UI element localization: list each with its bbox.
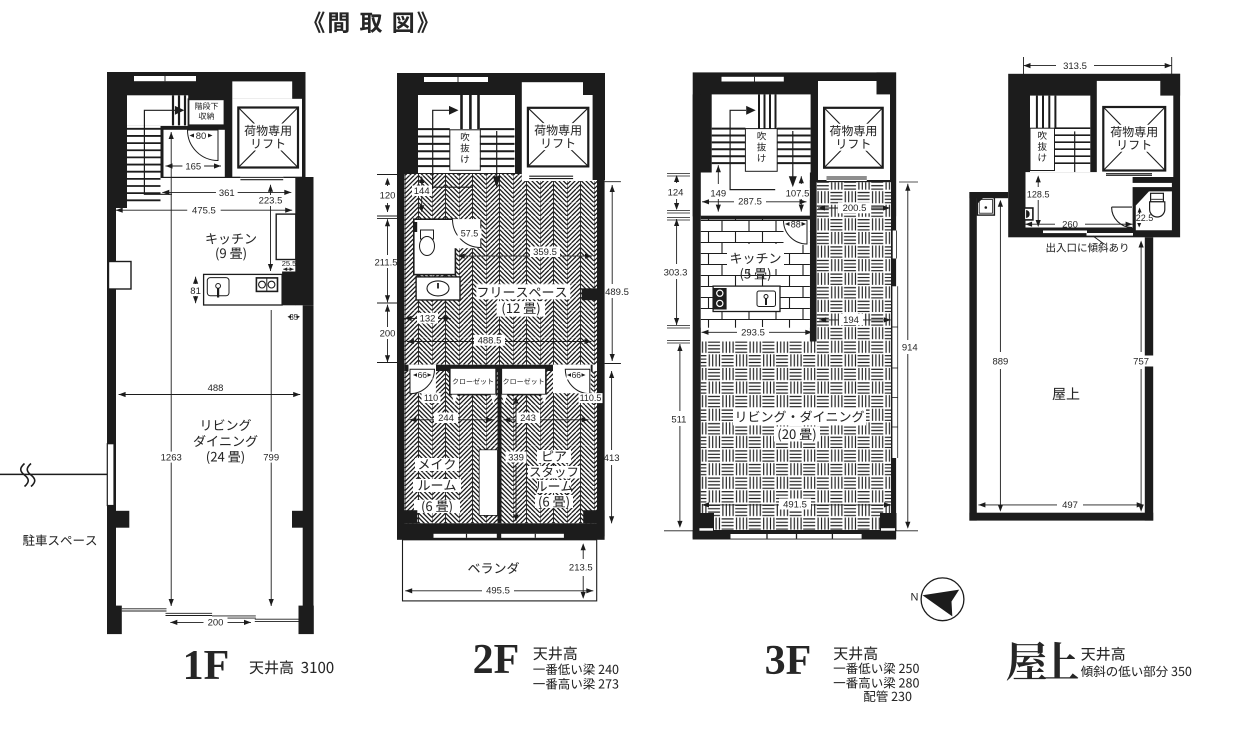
svg-text:799: 799 xyxy=(263,453,279,464)
svg-text:110.5: 110.5 xyxy=(580,393,602,403)
svg-text:213.5: 213.5 xyxy=(569,562,593,573)
svg-text:243: 243 xyxy=(520,413,536,424)
svg-text:149: 149 xyxy=(710,189,726,200)
svg-text:287.5: 287.5 xyxy=(738,197,762,208)
svg-text:120: 120 xyxy=(380,190,396,201)
svg-text:22.5: 22.5 xyxy=(1136,213,1154,223)
svg-text:66: 66 xyxy=(572,370,582,380)
svg-text:293.5: 293.5 xyxy=(741,328,765,339)
svg-text:66: 66 xyxy=(418,370,428,380)
svg-text:491.5: 491.5 xyxy=(783,500,807,511)
svg-text:511: 511 xyxy=(671,415,686,426)
svg-text:488.5: 488.5 xyxy=(478,336,502,347)
svg-text:165: 165 xyxy=(185,161,201,172)
svg-text:35: 35 xyxy=(289,313,298,322)
svg-text:495.5: 495.5 xyxy=(486,586,510,597)
svg-text:914: 914 xyxy=(902,343,918,354)
svg-text:488: 488 xyxy=(208,383,224,394)
svg-text:303.3: 303.3 xyxy=(664,268,688,279)
svg-text:1263: 1263 xyxy=(161,453,182,464)
svg-text:313.5: 313.5 xyxy=(1063,61,1087,72)
svg-text:497: 497 xyxy=(1062,500,1078,511)
svg-text:260: 260 xyxy=(1062,220,1078,231)
svg-text:80: 80 xyxy=(196,131,207,142)
svg-text:107.5: 107.5 xyxy=(786,189,810,200)
svg-text:475.5: 475.5 xyxy=(192,206,216,217)
svg-text:244: 244 xyxy=(438,413,454,424)
svg-text:489.5: 489.5 xyxy=(605,287,629,298)
svg-text:1F: 1F xyxy=(183,643,230,689)
svg-text:144: 144 xyxy=(414,186,430,197)
svg-text:223.5: 223.5 xyxy=(259,196,283,207)
svg-text:889: 889 xyxy=(992,357,1008,368)
svg-text:200: 200 xyxy=(208,618,224,629)
svg-text:211.5: 211.5 xyxy=(374,257,397,268)
svg-text:194: 194 xyxy=(843,315,859,326)
svg-text:200: 200 xyxy=(380,328,396,339)
svg-text:361: 361 xyxy=(219,188,235,199)
svg-text:413: 413 xyxy=(604,453,620,464)
svg-text:124: 124 xyxy=(668,188,684,199)
svg-text:110: 110 xyxy=(424,393,438,403)
svg-text:132: 132 xyxy=(420,313,436,324)
svg-text:128.5: 128.5 xyxy=(1027,190,1050,200)
svg-text:339: 339 xyxy=(508,452,524,463)
svg-text:757: 757 xyxy=(1133,357,1149,368)
svg-text:N: N xyxy=(911,592,919,604)
svg-text:57.5: 57.5 xyxy=(461,229,479,239)
svg-text:2F: 2F xyxy=(473,637,520,683)
svg-text:81: 81 xyxy=(190,286,201,297)
svg-text:200.5: 200.5 xyxy=(843,203,867,214)
svg-text:25.5: 25.5 xyxy=(282,259,297,268)
svg-text:359.5: 359.5 xyxy=(533,247,557,258)
svg-text:88: 88 xyxy=(791,219,801,229)
svg-text:3F: 3F xyxy=(765,638,812,684)
